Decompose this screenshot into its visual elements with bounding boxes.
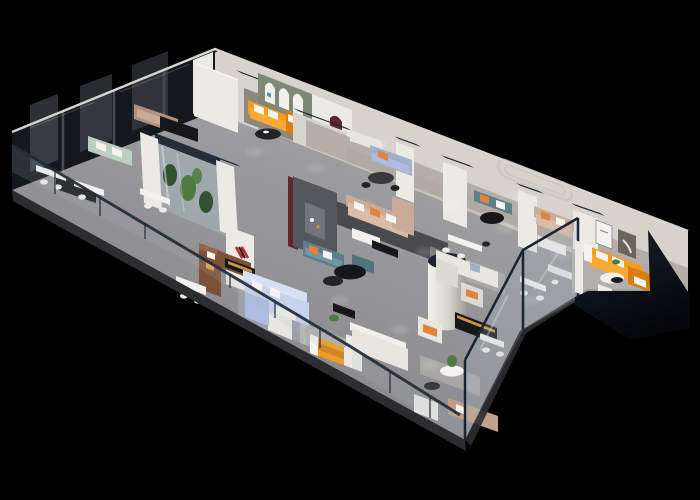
white-round-table — [440, 366, 464, 377]
black-oval-table — [323, 276, 343, 286]
balcony-corner-post — [575, 240, 583, 295]
dark-chair — [391, 185, 400, 191]
spotlight-glow — [246, 148, 264, 156]
spotlight-glow — [421, 361, 439, 369]
white-pillar — [443, 162, 467, 228]
terrarium-plant — [199, 191, 213, 213]
showroom-render: Isometric 3D cutaway rendering of a furn… — [0, 0, 700, 500]
dining-chair — [442, 247, 450, 252]
table-plant — [447, 355, 457, 367]
render-canvas: Isometric 3D cutaway rendering of a furn… — [0, 0, 700, 500]
dining-chair — [144, 203, 152, 208]
potted-plant — [329, 315, 339, 322]
dining-chair — [159, 207, 167, 212]
spotlight-glow — [331, 296, 349, 304]
spotlight-glow — [441, 201, 459, 209]
spotlight-glow — [496, 224, 514, 232]
round-dark-table — [368, 172, 394, 184]
sofa-plant — [612, 260, 620, 265]
black-round-table — [480, 212, 504, 224]
spotlight-glow — [416, 248, 434, 256]
spotlight-glow — [306, 164, 324, 172]
shelf-decor — [316, 225, 319, 228]
spotlight-glow — [391, 326, 409, 334]
dark-coffee-table — [255, 129, 281, 140]
terrarium-plant — [192, 168, 202, 184]
dining-chair — [457, 253, 465, 258]
dark-chair — [362, 182, 371, 188]
dark-chair — [482, 241, 490, 246]
round-coffee-table-dark-half — [611, 277, 623, 283]
sofa-arm-panel — [584, 243, 592, 263]
dark-side-table — [424, 382, 440, 390]
table-decor — [263, 131, 269, 134]
shelf-decor — [310, 218, 314, 222]
